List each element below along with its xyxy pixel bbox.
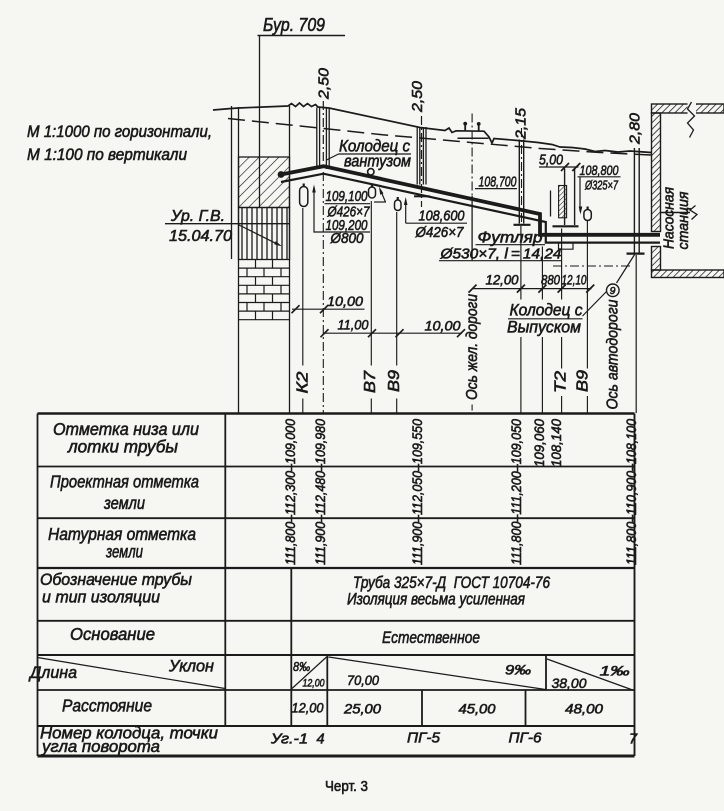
svg-text:Т2: Т2: [553, 371, 570, 393]
svg-text:880: 880: [541, 273, 560, 288]
svg-text:12,10: 12,10: [562, 273, 587, 288]
svg-text:вантузом: вантузом: [344, 152, 411, 171]
svg-text:111,800–112,300–109,000: 111,800–112,300–109,000: [283, 419, 298, 565]
svg-text:108,700: 108,700: [479, 174, 517, 191]
svg-text:111,900–112,050–109,550: 111,900–112,050–109,550: [410, 419, 425, 565]
svg-text:Уклон: Уклон: [168, 657, 215, 676]
svg-text:лотки трубы: лотки трубы: [67, 437, 178, 457]
svg-text:109,060: 109,060: [532, 419, 547, 467]
svg-text:48,00: 48,00: [565, 702, 604, 717]
svg-text:11,00: 11,00: [338, 317, 369, 333]
svg-text:9: 9: [610, 285, 616, 297]
svg-text:25,00: 25,00: [343, 702, 382, 717]
svg-text:Ось жел. дороги: Ось жел. дороги: [464, 294, 481, 400]
svg-text:8‰: 8‰: [293, 659, 310, 674]
svg-text:38,00: 38,00: [552, 675, 587, 691]
svg-text:7: 7: [629, 732, 638, 748]
svg-text:108,140: 108,140: [549, 419, 564, 467]
svg-text:угла поворота: угла поворота: [41, 737, 160, 756]
svg-text:2,50: 2,50: [315, 67, 332, 100]
svg-text:10,00: 10,00: [327, 293, 363, 309]
svg-text:111,900–112,480–109,980: 111,900–112,480–109,980: [313, 419, 328, 565]
svg-text:15.04.70: 15.04.70: [169, 228, 232, 245]
svg-text:1‰: 1‰: [600, 663, 630, 679]
svg-text:2,15: 2,15: [512, 107, 529, 140]
svg-text:земли: земли: [105, 542, 143, 562]
svg-text:Выпуском: Выпуском: [507, 318, 581, 337]
svg-text:9‰: 9‰: [505, 662, 531, 678]
svg-text:Футляр: Футляр: [478, 230, 543, 247]
svg-text:Ø800: Ø800: [330, 230, 364, 247]
svg-text:В7: В7: [362, 369, 379, 393]
svg-text:12,00: 12,00: [303, 678, 326, 690]
svg-text:45,00: 45,00: [459, 702, 497, 717]
svg-text:108,600: 108,600: [419, 208, 466, 225]
svg-text:Естественное: Естественное: [382, 628, 480, 647]
svg-text:108,800: 108,800: [580, 162, 619, 178]
svg-text:2,50: 2,50: [409, 80, 426, 113]
svg-text:земли: земли: [103, 493, 145, 513]
svg-text:ПГ-5: ПГ-5: [407, 731, 441, 747]
svg-text:Ø530×7, l = 14,24: Ø530×7, l = 14,24: [439, 247, 561, 263]
svg-text:Обозначение трубы: Обозначение трубы: [40, 570, 192, 589]
svg-text:ПГ-6: ПГ-6: [509, 731, 543, 747]
svg-text:111,800–110,900–108,100: 111,800–110,900–108,100: [624, 419, 639, 565]
svg-text:М 1:1000 по горизонтали,: М 1:1000 по горизонтали,: [27, 123, 212, 141]
svg-text:4: 4: [317, 732, 325, 748]
svg-text:Изоляция весьма усиленная: Изоляция весьма усиленная: [347, 591, 525, 609]
svg-text:2,80: 2,80: [626, 112, 643, 145]
svg-text:Ось автодороги: Ось автодороги: [605, 299, 622, 409]
svg-text:Бур. 709: Бур. 709: [263, 15, 325, 35]
svg-text:Ур. Г.В.: Ур. Г.В.: [170, 208, 225, 225]
svg-text:109,100: 109,100: [326, 188, 368, 205]
svg-text:12,00: 12,00: [292, 701, 324, 716]
svg-text:станция: станция: [675, 192, 692, 250]
svg-text:и тип изоляции: и тип изоляции: [42, 588, 161, 607]
svg-text:Труба 325×7-Д ГОСТ 10704-76: Труба 325×7-Д ГОСТ 10704-76: [353, 574, 551, 592]
svg-text:70,00: 70,00: [347, 672, 379, 688]
svg-text:В9: В9: [386, 370, 403, 392]
svg-text:5,00: 5,00: [539, 153, 563, 169]
svg-text:Черт. 3: Черт. 3: [325, 779, 368, 795]
svg-text:111,800–111,200–109,050: 111,800–111,200–109,050: [509, 419, 524, 565]
svg-text:Ø325×7: Ø325×7: [584, 178, 618, 193]
svg-text:М 1:100 по вертикали: М 1:100 по вертикали: [27, 146, 187, 164]
svg-text:К2: К2: [295, 371, 312, 393]
svg-text:В9: В9: [575, 370, 592, 392]
svg-text:Проектная отметка: Проектная отметка: [50, 472, 199, 492]
svg-text:Уг.-1: Уг.-1: [270, 732, 308, 748]
svg-text:Ø426×7: Ø426×7: [415, 224, 464, 241]
svg-text:10,00: 10,00: [425, 318, 461, 334]
svg-text:Основание: Основание: [70, 624, 155, 644]
svg-text:12,00: 12,00: [486, 273, 519, 288]
svg-text:Длина: Длина: [28, 663, 77, 682]
svg-text:Расстояние: Расстояние: [62, 696, 152, 716]
